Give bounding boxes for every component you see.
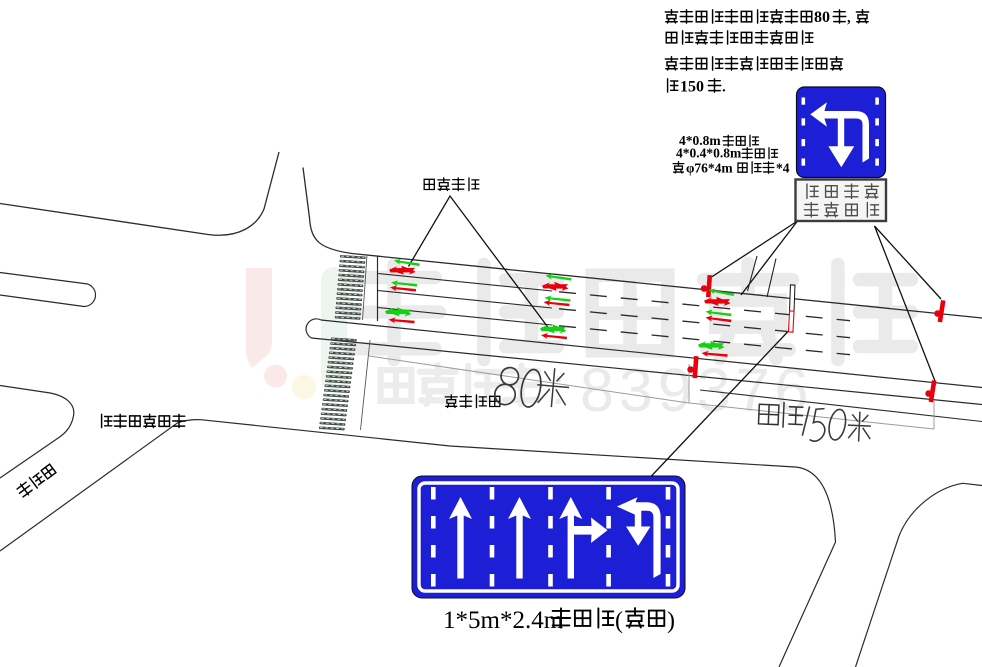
svg-text:): ) <box>667 608 675 634</box>
svg-text:4*0.4*0.8m: 4*0.4*0.8m <box>676 146 742 161</box>
svg-text:1*5m*2.4m: 1*5m*2.4m <box>443 607 564 634</box>
svg-text:φ76*4m: φ76*4m <box>686 161 733 176</box>
svg-text:150: 150 <box>680 79 704 96</box>
svg-text:,: , <box>847 10 851 26</box>
svg-text:*4: *4 <box>776 161 790 176</box>
svg-text:(: ( <box>615 608 623 634</box>
svg-text:.: . <box>722 80 726 96</box>
svg-text:80: 80 <box>814 9 830 26</box>
